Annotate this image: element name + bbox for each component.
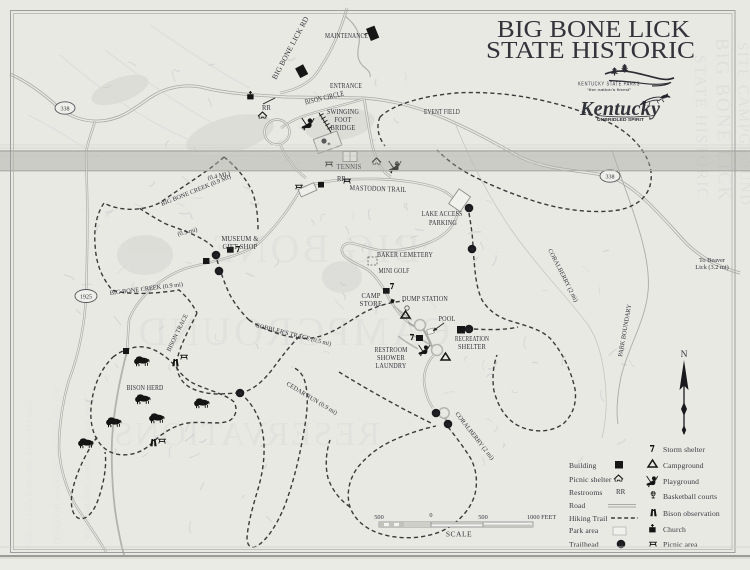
svg-text:500: 500 bbox=[374, 514, 383, 521]
svg-text:Park area: Park area bbox=[569, 526, 599, 535]
svg-text:ENTRANCE: ENTRANCE bbox=[330, 81, 362, 90]
svg-text:338: 338 bbox=[606, 175, 615, 181]
svg-text:RR: RR bbox=[337, 174, 346, 183]
svg-text:To Beaver: To Beaver bbox=[699, 257, 726, 264]
svg-text:Basketball courts: Basketball courts bbox=[663, 492, 717, 501]
svg-text:RR: RR bbox=[616, 488, 626, 496]
svg-text:500: 500 bbox=[478, 514, 487, 521]
svg-text:Picnic shelter: Picnic shelter bbox=[569, 475, 612, 484]
svg-text:RR: RR bbox=[262, 103, 271, 112]
svg-text:0: 0 bbox=[429, 512, 432, 519]
svg-text:Storm shelter: Storm shelter bbox=[663, 445, 705, 454]
svg-text:Restrooms: Restrooms bbox=[569, 488, 602, 497]
svg-text:Building: Building bbox=[569, 461, 596, 470]
svg-text:Bison observation: Bison observation bbox=[663, 509, 720, 518]
svg-text:STORE: STORE bbox=[360, 299, 383, 308]
svg-text:Trailhead: Trailhead bbox=[569, 540, 599, 549]
svg-text:N: N bbox=[681, 350, 688, 360]
svg-text:UNBRIDLED SPIRIT: UNBRIDLED SPIRIT bbox=[597, 117, 644, 122]
svg-text:Picnic area: Picnic area bbox=[663, 540, 698, 549]
svg-text:MINI GOLF: MINI GOLF bbox=[379, 266, 410, 275]
svg-text:SHELTER: SHELTER bbox=[458, 342, 486, 351]
svg-text:338: 338 bbox=[61, 107, 70, 113]
svg-text:STATE HISTORIC: STATE HISTORIC bbox=[691, 55, 711, 200]
svg-text:Hiking Trail: Hiking Trail bbox=[569, 514, 608, 523]
svg-text:Playground: Playground bbox=[663, 477, 699, 486]
svg-text:MAINTENANCE: MAINTENANCE bbox=[325, 31, 368, 40]
svg-text:SCALE: SCALE bbox=[446, 530, 472, 539]
svg-text:1000 FEET: 1000 FEET bbox=[527, 514, 556, 521]
svg-text:LAKE ACCESS: LAKE ACCESS bbox=[422, 209, 463, 218]
svg-text:BISON HERD: BISON HERD bbox=[127, 383, 164, 392]
svg-text:Lick (3.2 mi): Lick (3.2 mi) bbox=[695, 264, 728, 271]
svg-text:BAKER CEMETERY: BAKER CEMETERY bbox=[377, 250, 433, 259]
svg-text:DUMP STATION: DUMP STATION bbox=[402, 294, 448, 303]
svg-text:LAUNDRY: LAUNDRY bbox=[376, 361, 407, 370]
svg-text:Church: Church bbox=[663, 525, 686, 534]
svg-text:EVENT FIELD: EVENT FIELD bbox=[424, 107, 460, 116]
svg-text:STATE HISTORIC: STATE HISTORIC bbox=[486, 38, 695, 64]
svg-text:“the nation's finest”: “the nation's finest” bbox=[587, 87, 632, 92]
svg-text:BIG BONE LICK: BIG BONE LICK bbox=[711, 38, 735, 203]
svg-text:RESERVATIONS: RESERVATIONS bbox=[112, 416, 380, 453]
svg-text:Campground: Campground bbox=[663, 461, 704, 470]
svg-text:1925: 1925 bbox=[80, 295, 92, 301]
svg-text:PARKING: PARKING bbox=[429, 218, 457, 227]
svg-text:POOL: POOL bbox=[439, 314, 456, 323]
svg-text:Walk on slick first-come, firs: Walk on slick first-come, first serve ba… bbox=[24, 399, 34, 548]
svg-text:BRIDGE: BRIDGE bbox=[331, 123, 356, 132]
svg-text:Road: Road bbox=[569, 501, 586, 510]
svg-text:GIFT SHOP: GIFT SHOP bbox=[223, 242, 258, 251]
